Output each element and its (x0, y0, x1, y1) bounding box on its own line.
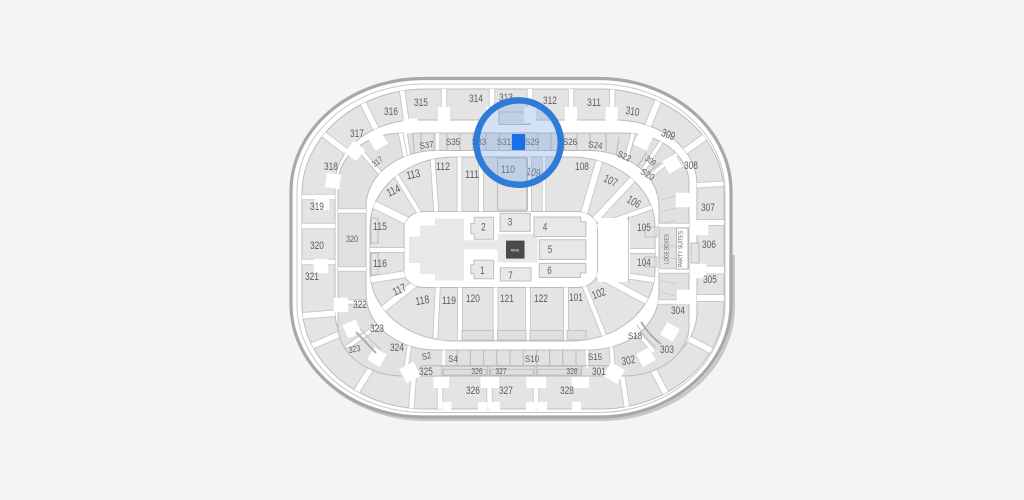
svg-text:317: 317 (350, 128, 364, 140)
svg-text:312: 312 (543, 95, 557, 107)
svg-text:308: 308 (684, 160, 698, 172)
svg-text:325: 325 (419, 366, 433, 378)
svg-text:104: 104 (637, 257, 651, 269)
svg-text:119: 119 (442, 295, 456, 307)
svg-text:PARTY SUITES: PARTY SUITES (679, 231, 685, 267)
svg-text:121: 121 (500, 293, 514, 305)
svg-text:301: 301 (592, 366, 606, 378)
svg-text:5: 5 (548, 244, 553, 256)
svg-text:111: 111 (465, 169, 479, 181)
svg-text:LOGE BOXES: LOGE BOXES (665, 234, 671, 264)
svg-text:302: 302 (621, 354, 637, 368)
svg-text:327: 327 (499, 385, 513, 397)
svg-text:318: 318 (324, 161, 338, 173)
svg-text:112: 112 (436, 161, 450, 173)
svg-text:S4: S4 (448, 354, 458, 364)
svg-text:305: 305 (703, 274, 717, 286)
svg-text:323: 323 (370, 323, 384, 335)
svg-text:4: 4 (543, 222, 548, 234)
svg-text:321: 321 (305, 271, 319, 283)
svg-text:319: 319 (310, 201, 324, 213)
svg-text:1: 1 (480, 265, 485, 277)
svg-text:7: 7 (508, 270, 513, 282)
svg-text:304: 304 (671, 305, 685, 317)
svg-text:122: 122 (534, 293, 548, 305)
svg-text:2: 2 (481, 222, 486, 234)
svg-text:118: 118 (415, 294, 431, 308)
svg-text:324: 324 (390, 342, 404, 354)
svg-text:328: 328 (560, 385, 574, 397)
svg-text:101: 101 (569, 292, 583, 304)
svg-text:316: 316 (384, 106, 398, 118)
svg-text:327: 327 (495, 366, 507, 376)
svg-text:S37: S37 (419, 139, 435, 151)
svg-text:315: 315 (414, 97, 428, 109)
svg-text:S26: S26 (563, 137, 577, 147)
svg-text:320: 320 (310, 240, 324, 252)
svg-text:S10: S10 (525, 354, 539, 364)
svg-text:S18: S18 (628, 331, 642, 341)
svg-text:326: 326 (466, 385, 480, 397)
svg-text:116: 116 (373, 258, 387, 270)
svg-text:S35: S35 (446, 137, 460, 147)
svg-text:306: 306 (702, 239, 716, 251)
svg-text:326: 326 (471, 366, 483, 376)
svg-text:RING: RING (511, 249, 520, 253)
svg-text:6: 6 (547, 265, 552, 277)
svg-text:303: 303 (660, 344, 674, 356)
svg-text:105: 105 (637, 222, 651, 234)
svg-text:S24: S24 (588, 139, 604, 151)
svg-text:115: 115 (373, 221, 387, 233)
svg-text:328: 328 (566, 366, 578, 376)
svg-text:314: 314 (469, 93, 483, 105)
svg-text:3: 3 (508, 217, 513, 229)
svg-text:310: 310 (625, 105, 640, 119)
svg-text:S15: S15 (588, 352, 602, 362)
svg-text:108: 108 (575, 161, 589, 173)
svg-text:320: 320 (346, 234, 358, 244)
svg-text:120: 120 (466, 293, 480, 305)
svg-text:307: 307 (701, 202, 715, 214)
svg-text:322: 322 (353, 299, 367, 311)
svg-text:311: 311 (587, 97, 601, 109)
svg-text:S2: S2 (421, 350, 432, 361)
